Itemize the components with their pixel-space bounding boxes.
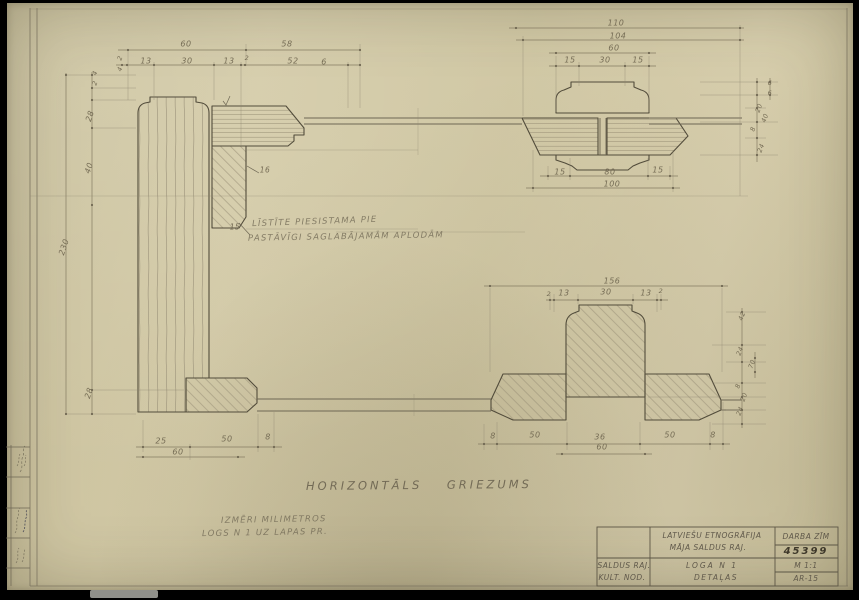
dim-label: 6	[768, 79, 773, 87]
dim-label: 60	[172, 448, 183, 457]
dim-label: 104	[610, 32, 627, 41]
title-block-doc-type: DARBA ZĪM	[782, 532, 829, 541]
dim-label: 28	[83, 386, 95, 399]
dim-label: 24	[735, 345, 746, 356]
dim-label: 24	[756, 142, 767, 153]
dim-label: 110	[608, 19, 625, 28]
title-block-drawing-line2: DETAĻAS	[694, 573, 738, 582]
dim-label: 2	[659, 287, 664, 295]
dim-label: 4	[115, 65, 124, 72]
dim-label: 24	[735, 405, 746, 416]
dim-label: 50	[664, 431, 675, 440]
dim-label: 28	[84, 109, 96, 122]
dim-label: 50	[529, 431, 540, 440]
dim-label: 4	[90, 69, 99, 76]
dim-label: 15	[564, 56, 575, 65]
dim-label: 2	[115, 54, 124, 61]
dim-label: 15	[554, 168, 565, 177]
dim-label: 2	[90, 79, 99, 86]
dim-label: 42	[737, 310, 748, 321]
dim-label: 8	[265, 433, 271, 442]
units-note: IZMĒRI MILIMETROS	[221, 514, 327, 526]
dim-label: 40	[83, 161, 95, 174]
dim-label: 60	[180, 40, 191, 49]
dim-label: 16	[260, 166, 271, 175]
dim-label: 156	[604, 277, 621, 286]
dim-label: 13	[140, 57, 151, 66]
photographed-drawing-sheet: 6058241330132526422840230281101046015301…	[0, 0, 859, 600]
dim-label: 20	[739, 391, 750, 402]
dim-label: 30	[181, 57, 192, 66]
dim-label: 15	[230, 223, 241, 232]
dim-label: 6	[768, 89, 773, 97]
dim-label: 15	[652, 166, 663, 175]
dim-label: 60	[596, 443, 607, 452]
dim-label: 36	[594, 433, 605, 442]
title-block-office-line1: SALDUS RAJ.	[598, 561, 651, 570]
section-title: HORIZONTĀLS GRIEZUMS	[306, 477, 532, 493]
dim-label: 8	[748, 125, 757, 132]
dim-label: 13	[558, 289, 569, 298]
dim-label: 50	[221, 435, 232, 444]
title-block-doc-number: 45399	[784, 546, 829, 557]
dim-label: 58	[281, 40, 292, 49]
title-block-drawing-line1: LOGA N 1	[686, 561, 738, 570]
title-block-project-line2: MĀJA SALDUS RAJ.	[670, 543, 747, 552]
dim-label: 2	[547, 290, 552, 298]
dim-label: 60	[608, 44, 619, 53]
dim-label: 6	[321, 58, 327, 67]
dim-label: 8	[710, 431, 716, 440]
dim-label: 80	[604, 168, 615, 177]
dim-label: 25	[155, 437, 166, 446]
dim-label: 8	[733, 382, 742, 389]
dim-label: 70	[747, 358, 758, 369]
dim-label: 30	[599, 56, 610, 65]
title-block-scale: M 1:1	[794, 561, 817, 570]
photo-edge-artifact	[90, 590, 158, 598]
dim-label: 15	[632, 56, 643, 65]
dim-label: 230	[57, 238, 71, 257]
dim-label: 13	[640, 289, 651, 298]
dimension-labels-layer: 6058241330132526422840230281101046015301…	[0, 0, 859, 600]
dim-label: 40	[760, 112, 771, 123]
dim-label: 8	[490, 432, 496, 441]
dim-label: 2	[245, 54, 250, 62]
dim-label: 13	[223, 57, 234, 66]
title-block-sheet-number: AR-15	[793, 574, 818, 583]
dim-label: 30	[600, 288, 611, 297]
title-block-project-line1: LATVIEŠU ETNOGRĀFIJA	[663, 531, 762, 540]
dim-label: 100	[604, 180, 621, 189]
dim-label: 52	[287, 57, 298, 66]
title-block-office-line2: KULT. NOD.	[598, 573, 645, 582]
